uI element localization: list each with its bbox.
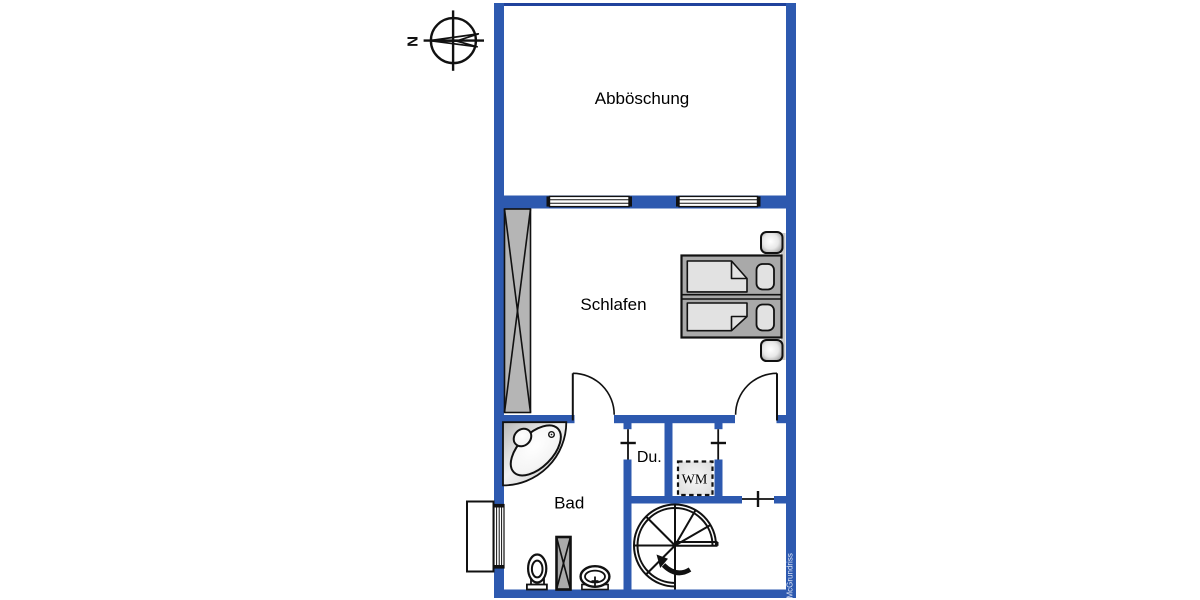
svg-text:N: N (404, 36, 421, 47)
svg-text:McGrundriss: McGrundriss (786, 553, 795, 598)
svg-text:Schlafen: Schlafen (580, 295, 646, 314)
svg-text:WM: WM (682, 473, 708, 488)
svg-text:Du.: Du. (637, 449, 662, 466)
svg-text:Abböschung: Abböschung (595, 89, 690, 108)
svg-text:Bad: Bad (554, 494, 584, 513)
